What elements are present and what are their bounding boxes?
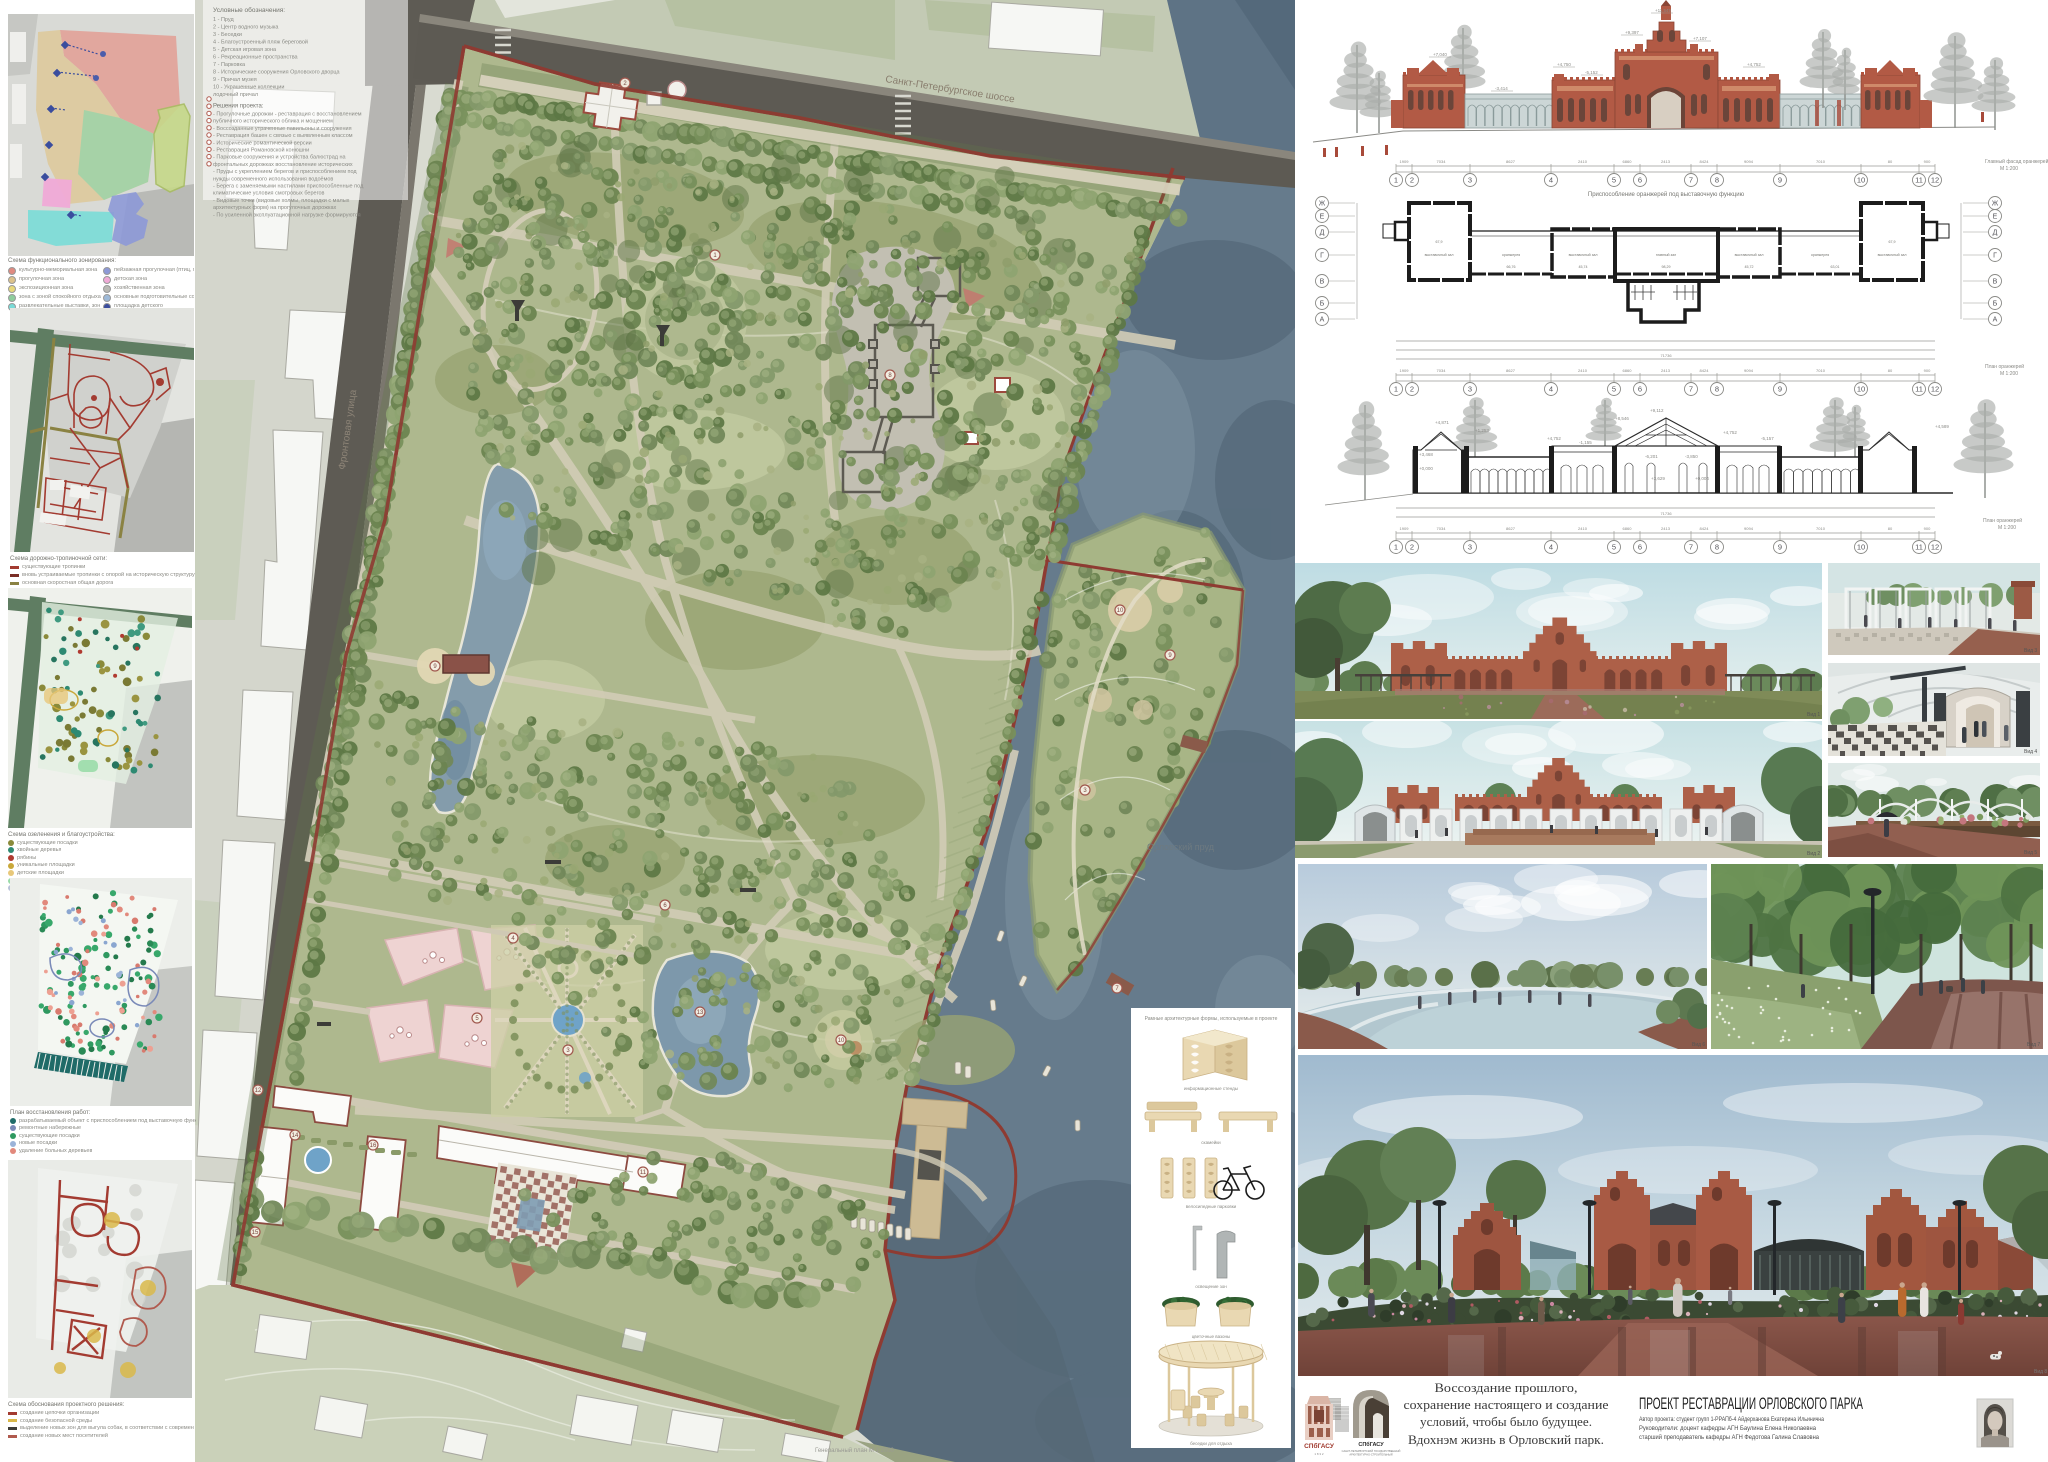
svg-text:Главный фасад оранжерей: Главный фасад оранжерей (1985, 158, 2048, 165)
svg-text:5: 5 (1612, 385, 1616, 394)
svg-text:План оранжерей: План оранжерей (1983, 517, 2022, 524)
svg-text:6: 6 (1638, 543, 1642, 552)
svg-text:публичного исторического облик: публичного исторического облика и мощени… (213, 119, 333, 125)
svg-text:45,72: 45,72 (1745, 265, 1754, 269)
svg-text:Вид 1: Вид 1 (1807, 712, 1820, 718)
svg-text:+9,397: +9,397 (1625, 30, 1639, 35)
svg-text:8 - Исторические сооружения Ор: 8 - Исторические сооружения Орловского д… (213, 70, 341, 76)
svg-text:А: А (1320, 317, 1325, 324)
svg-text:8627: 8627 (1506, 526, 1516, 531)
svg-text:Е: Е (1993, 214, 1998, 221)
svg-text:+11,549: +11,549 (1655, 8, 1672, 13)
svg-text:Вид 6: Вид 6 (1692, 1042, 1705, 1048)
svg-text:12: 12 (1931, 543, 1939, 552)
svg-text:80: 80 (1888, 159, 1893, 164)
svg-text:10: 10 (1857, 176, 1865, 185)
svg-text:+0,000: +0,000 (1419, 466, 1433, 471)
svg-text:-5,157: -5,157 (1761, 436, 1774, 441)
svg-text:8424: 8424 (1700, 526, 1710, 531)
svg-text:5: 5 (1612, 176, 1616, 185)
svg-text:+3,468: +3,468 (1419, 452, 1433, 457)
svg-text:11: 11 (1915, 385, 1923, 394)
svg-text:8424: 8424 (1700, 159, 1710, 164)
svg-text:2413: 2413 (1661, 159, 1671, 164)
svg-text:67,9: 67,9 (1436, 240, 1443, 244)
svg-text:В: В (1320, 279, 1325, 286)
svg-text:3: 3 (1468, 176, 1472, 185)
svg-text:Вид 2: Вид 2 (1807, 851, 1820, 857)
svg-text:+4,752: +4,752 (1547, 436, 1561, 441)
svg-text:-1,155: -1,155 (1579, 440, 1592, 445)
svg-text:15: 15 (252, 1230, 259, 1236)
svg-text:+4,752: +4,752 (1747, 62, 1761, 67)
svg-text:Б: Б (1320, 301, 1325, 308)
svg-text:2: 2 (1410, 176, 1414, 185)
svg-text:5: 5 (1612, 543, 1616, 552)
svg-text:7: 7 (1689, 385, 1693, 394)
svg-text:10: 10 (838, 1038, 845, 1044)
svg-text:2413: 2413 (1661, 368, 1671, 373)
svg-text:М 1:200: М 1:200 (2000, 166, 2018, 172)
svg-text:2: 2 (1410, 543, 1414, 552)
svg-text:Орловский пруд: Орловский пруд (1147, 842, 1215, 852)
svg-text:9094: 9094 (1744, 159, 1754, 164)
svg-text:Д: Д (1993, 230, 1998, 237)
svg-text:-6,201: -6,201 (1645, 454, 1658, 459)
svg-text:2410: 2410 (1578, 368, 1588, 373)
svg-text:12: 12 (1931, 385, 1939, 394)
svg-text:80: 80 (1888, 526, 1893, 531)
svg-text:7: 7 (1689, 543, 1693, 552)
svg-text:6860: 6860 (1623, 368, 1633, 373)
svg-text:Ж: Ж (1992, 201, 1999, 208)
svg-text:+1,253: +1,253 (1475, 428, 1489, 433)
svg-text:9: 9 (1778, 543, 1782, 552)
svg-text:Е: Е (1320, 214, 1325, 221)
svg-text:10: 10 (1117, 608, 1124, 614)
svg-text:Г: Г (1320, 253, 1324, 260)
svg-text:Генеральный план М 1:2000: Генеральный план М 1:2000 (815, 1447, 895, 1454)
svg-text:-5,152: -5,152 (1585, 70, 1598, 75)
svg-text:Решения проекта:: Решения проекта: (213, 104, 264, 110)
svg-text:71736: 71736 (1660, 511, 1672, 516)
svg-text:оранжерея: оранжерея (1502, 253, 1520, 257)
svg-text:- По усиленной эксплуатационно: - По усиленной эксплуатационной нагрузке… (213, 211, 361, 218)
svg-text:Д: Д (1320, 230, 1325, 237)
svg-text:2413: 2413 (1661, 526, 1671, 531)
svg-text:9094: 9094 (1744, 368, 1754, 373)
svg-text:Вид 4: Вид 4 (2024, 749, 2037, 755)
svg-text:-3,850: -3,850 (1685, 454, 1698, 459)
svg-text:М 1:200: М 1:200 (2000, 371, 2018, 377)
svg-text:выставочный зал: выставочный зал (1425, 253, 1454, 257)
svg-text:9: 9 (1778, 176, 1782, 185)
svg-text:11: 11 (640, 1170, 647, 1176)
svg-text:9: 9 (1778, 385, 1782, 394)
svg-text:4 - Благоустроенный пляж берег: 4 - Благоустроенный пляж береговой (213, 39, 308, 46)
svg-text:7: 7 (1689, 176, 1693, 185)
svg-text:900: 900 (1924, 159, 1931, 164)
svg-text:8: 8 (1715, 385, 1719, 394)
svg-text:900: 900 (1924, 368, 1931, 373)
svg-text:66,76: 66,76 (1507, 265, 1516, 269)
svg-text:1: 1 (1394, 176, 1398, 185)
svg-text:6: 6 (1638, 385, 1642, 394)
svg-text:- Воссозданные утраченные пави: - Воссозданные утраченные павильоны и со… (213, 126, 352, 132)
svg-text:8627: 8627 (1506, 159, 1516, 164)
svg-text:1: 1 (1394, 385, 1398, 394)
svg-text:В: В (1993, 279, 1998, 286)
svg-text:7034: 7034 (1437, 526, 1447, 531)
svg-text:11: 11 (1915, 176, 1923, 185)
svg-text:6 - Рекреационные пространства: 6 - Рекреационные пространства (213, 55, 299, 61)
svg-text:2 - Центр водного музыка: 2 - Центр водного музыка (213, 25, 279, 31)
svg-text:8627: 8627 (1506, 368, 1516, 373)
svg-text:14: 14 (292, 1133, 299, 1139)
svg-text:+7,040: +7,040 (1433, 52, 1447, 57)
svg-text:+4,752: +4,752 (1723, 430, 1737, 435)
svg-text:архитектурных форм) на прогуло: архитектурных форм) на прогулочных дорож… (213, 205, 337, 211)
svg-text:+3,629: +3,629 (1651, 476, 1665, 481)
svg-text:7010: 7010 (1816, 368, 1826, 373)
svg-text:- Реставрация Романовской коню: - Реставрация Романовской конюшни (213, 147, 309, 154)
svg-text:- Видовые точки (видовые холмы: - Видовые точки (видовые холмы, площадки… (213, 198, 350, 204)
svg-text:+7,107: +7,107 (1693, 36, 1707, 41)
svg-text:1909: 1909 (1400, 159, 1410, 164)
svg-text:1: 1 (1394, 543, 1398, 552)
svg-text:+4,871: +4,871 (1435, 420, 1449, 425)
svg-text:Вид 5: Вид 5 (2024, 850, 2037, 856)
svg-text:6: 6 (1638, 176, 1642, 185)
svg-text:- Берега с заменяемыми настила: - Берега с заменяемыми настилами приспос… (213, 184, 364, 190)
svg-text:+4,750: +4,750 (1557, 62, 1571, 67)
svg-text:+9,112: +9,112 (1650, 408, 1664, 413)
svg-text:7010: 7010 (1816, 159, 1826, 164)
svg-text:-3,414: -3,414 (1495, 86, 1508, 91)
svg-text:+8,546: +8,546 (1615, 416, 1629, 421)
svg-text:63,01: 63,01 (1831, 265, 1840, 269)
svg-text:900: 900 (1924, 526, 1931, 531)
svg-text:80: 80 (1888, 368, 1893, 373)
svg-text:- Парковые сооружения и устрой: - Парковые сооружения и устройства балюс… (213, 154, 347, 161)
svg-text:5 - Детская игровая зона: 5 - Детская игровая зона (213, 47, 277, 53)
svg-text:+0,004: +0,004 (1695, 476, 1709, 481)
svg-text:8: 8 (1715, 543, 1719, 552)
svg-text:7034: 7034 (1437, 159, 1447, 164)
svg-text:4: 4 (1549, 176, 1553, 185)
svg-text:4: 4 (1549, 385, 1553, 394)
svg-text:- Прогулочные дорожки - рестав: - Прогулочные дорожки - реставрация с во… (213, 112, 362, 118)
svg-text:главный зал: главный зал (1656, 253, 1677, 257)
svg-text:- Пруды с укреплением берегов: - Пруды с укреплением берегов и приспосо… (213, 169, 357, 175)
svg-text:67,9: 67,9 (1889, 240, 1896, 244)
svg-text:3: 3 (1468, 385, 1472, 394)
svg-text:3: 3 (1468, 543, 1472, 552)
svg-text:М 1:200: М 1:200 (1998, 525, 2016, 531)
svg-text:12: 12 (255, 1088, 262, 1094)
svg-text:12: 12 (1931, 176, 1939, 185)
svg-text:Вид 3: Вид 3 (2024, 648, 2037, 654)
svg-text:4: 4 (1549, 543, 1553, 552)
svg-text:9094: 9094 (1744, 526, 1754, 531)
svg-text:6860: 6860 (1623, 159, 1633, 164)
svg-text:Приспособление оранжерей под в: Приспособление оранжерей под выставочную… (1588, 191, 1745, 198)
svg-text:выставочный зал: выставочный зал (1735, 253, 1764, 257)
svg-text:нужды современного использован: нужды современного использования водоёмо… (213, 176, 333, 182)
svg-text:Г: Г (1993, 253, 1997, 260)
svg-text:2410: 2410 (1578, 526, 1588, 531)
svg-text:71736: 71736 (1660, 353, 1672, 358)
svg-text:45,74: 45,74 (1579, 265, 1588, 269)
svg-text:10 - Украшенные коллекции: 10 - Украшенные коллекции (213, 85, 284, 91)
svg-text:3 - Беседки: 3 - Беседки (213, 32, 242, 38)
svg-text:2: 2 (1410, 385, 1414, 394)
svg-text:1 - Пруд: 1 - Пруд (213, 17, 234, 23)
svg-text:7010: 7010 (1816, 526, 1826, 531)
svg-text:Условные обозначения:: Условные обозначения: (213, 6, 285, 14)
svg-text:6860: 6860 (1623, 526, 1633, 531)
svg-text:10: 10 (1857, 543, 1865, 552)
svg-text:Ж: Ж (1319, 201, 1326, 208)
svg-text:1909: 1909 (1400, 526, 1410, 531)
svg-text:выставочный зал: выставочный зал (1878, 253, 1907, 257)
svg-text:1909: 1909 (1400, 368, 1410, 373)
svg-text:А: А (1993, 317, 1998, 324)
svg-text:- Исторические романтической в: - Исторические романтической версии (213, 139, 312, 146)
svg-text:7034: 7034 (1437, 368, 1447, 373)
svg-text:План оранжерей: План оранжерей (1985, 363, 2024, 370)
svg-text:11: 11 (1915, 543, 1923, 552)
svg-text:- Реставрация башен с связью с: - Реставрация башен с связью с выявленны… (213, 133, 353, 139)
svg-text:2410: 2410 (1578, 159, 1588, 164)
svg-text:лодочный причал: лодочный причал (213, 91, 258, 98)
svg-text:оранжерея: оранжерея (1811, 253, 1829, 257)
svg-text:климатические условия смотровы: климатические условия смотровых берегов (213, 191, 325, 197)
svg-text:Б: Б (1993, 301, 1998, 308)
svg-text:+4,589: +4,589 (1935, 424, 1949, 429)
svg-text:8: 8 (1715, 176, 1719, 185)
svg-text:8424: 8424 (1700, 368, 1710, 373)
svg-text:10: 10 (1857, 385, 1865, 394)
svg-text:13: 13 (697, 1010, 704, 1016)
svg-text:7 - Парковка: 7 - Парковка (213, 62, 246, 68)
svg-text:9 - Причал музея: 9 - Причал музея (213, 77, 257, 83)
svg-text:фронтальных дорожках восстанов: фронтальных дорожках восстановление исто… (213, 162, 353, 168)
svg-text:16: 16 (370, 1143, 377, 1149)
svg-text:98,29: 98,29 (1662, 265, 1671, 269)
svg-text:выставочный зал: выставочный зал (1569, 253, 1598, 257)
